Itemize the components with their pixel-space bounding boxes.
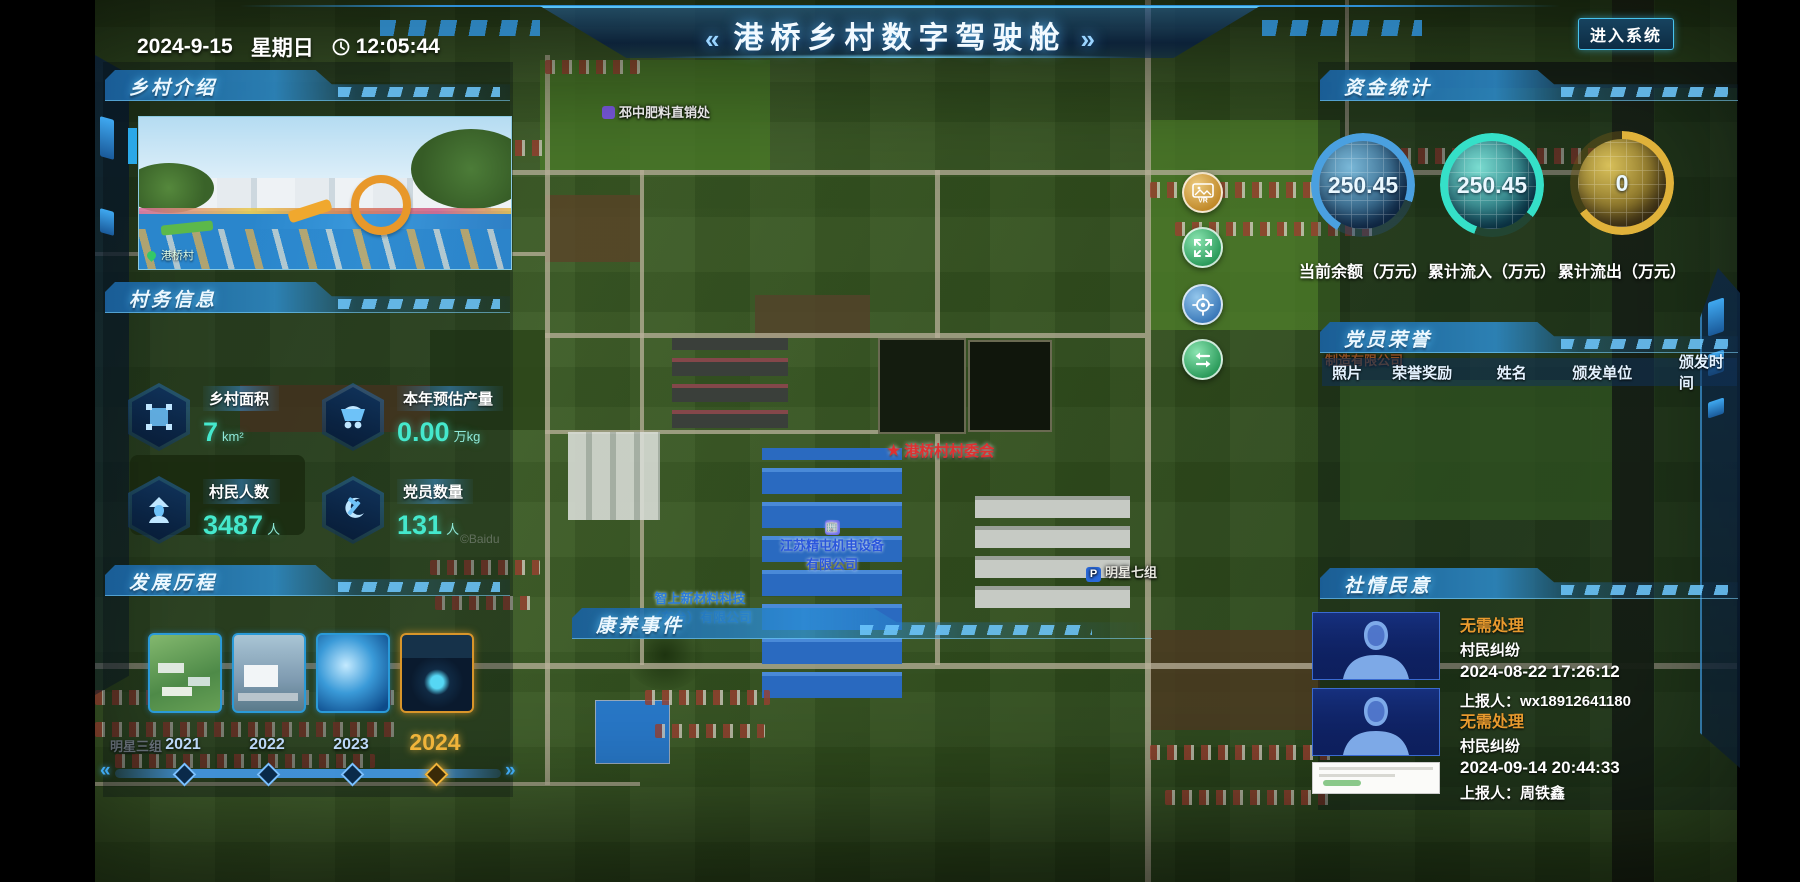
event-time: 2024-09-14 20:44:33 <box>1460 758 1620 778</box>
year-label-2022[interactable]: 2022 <box>232 736 302 754</box>
map-pond <box>878 338 966 434</box>
panel-title: 党员荣誉 <box>1344 325 1432 352</box>
clock-icon <box>332 38 350 56</box>
map-poi-fertilizer[interactable]: 邳中肥料直销处 <box>602 102 710 121</box>
map-building-cluster <box>672 338 788 428</box>
expand-arrows-icon <box>1193 238 1213 258</box>
page-title: «港桥乡村数字驾驶舱» <box>540 13 1260 57</box>
gauge-inflow: 250.45 <box>1440 133 1544 237</box>
map-factory-white <box>975 488 1130 608</box>
stat-icon-frame <box>322 383 384 451</box>
panel-title: 发展历程 <box>129 568 217 595</box>
map-road <box>545 55 550 785</box>
enter-system-button[interactable]: 进入系统 <box>1578 18 1674 50</box>
photo-path <box>138 229 512 270</box>
column-header: 照片 <box>1322 362 1392 383</box>
map-building-cluster <box>568 432 660 520</box>
gauge-value: 250.45 <box>1440 133 1544 237</box>
cart-icon <box>337 403 369 431</box>
vr-panorama-button[interactable]: VR <box>1182 172 1223 213</box>
header-stripes <box>860 625 1092 635</box>
stat-label: 党员数量 <box>397 479 473 504</box>
sentiment-screenshot-thumb <box>1312 762 1440 794</box>
year-label-2024-active[interactable]: 2024 <box>400 729 470 756</box>
stat-estimated-output: 本年预估产量 0.00万kg <box>322 383 517 451</box>
history-thumb-2022[interactable] <box>232 633 306 713</box>
photo-ring-sculpture <box>351 175 411 235</box>
stat-party-member-count: 党员数量 131人 <box>322 476 517 544</box>
time-label: 12:05:44 <box>356 35 440 59</box>
sentiment-avatar <box>1312 612 1440 680</box>
honors-table-header: 照片 荣誉奖励 姓名 颁发单位 颁发时间 <box>1322 358 1737 386</box>
map-poi-mingxing7[interactable]: P明星七组 <box>1086 562 1157 582</box>
event-time: 2024-08-22 17:26:12 <box>1460 662 1620 682</box>
map-houses <box>1150 745 1335 760</box>
gauge-label-outflow: 累计流出（万元） <box>1542 258 1702 282</box>
parking-marker-icon: P <box>1086 567 1101 582</box>
stat-icon-frame <box>128 383 190 451</box>
map-factory-blue <box>762 448 902 698</box>
weekday-label: 星期日 <box>251 32 314 62</box>
title-left-mark: « <box>705 24 719 54</box>
map-field <box>1150 630 1320 730</box>
map-field <box>545 195 640 262</box>
poi-icon <box>602 106 615 119</box>
people-icon <box>145 495 173 525</box>
panel-title: 康养事件 <box>596 611 684 638</box>
person-hologram-icon <box>1313 613 1439 679</box>
map-road <box>545 333 1145 338</box>
header-stripes <box>1561 585 1728 595</box>
map-field <box>755 295 870 338</box>
header-stripes <box>1561 87 1728 97</box>
star-marker-icon: ★ <box>886 441 901 460</box>
column-header: 姓名 <box>1497 362 1573 383</box>
year-label-2023[interactable]: 2023 <box>316 736 386 754</box>
locate-button[interactable] <box>1182 284 1223 325</box>
map-poi-village-committee[interactable]: ★港桥村村委会 <box>886 440 994 461</box>
stat-villager-count: 村民人数 3487人 <box>128 476 323 544</box>
stat-label: 乡村面积 <box>203 386 279 411</box>
photo-accent-bar <box>128 128 137 164</box>
panel-title: 资金统计 <box>1344 73 1432 100</box>
header-stripes <box>338 87 500 97</box>
column-header: 颁发单位 <box>1572 362 1679 383</box>
left-frame-bar <box>100 116 114 160</box>
stat-label: 村民人数 <box>203 479 280 504</box>
stat-value: 7km² <box>203 417 279 448</box>
status-badge: 无需处理 <box>1460 708 1620 732</box>
date-label: 2024-9-15 <box>137 35 233 59</box>
map-houses <box>545 60 640 74</box>
village-photo[interactable]: 港桥村 <box>138 116 512 270</box>
gauge-value: 250.45 <box>1311 133 1415 237</box>
column-header: 荣誉奖励 <box>1392 362 1497 383</box>
title-right-mark: » <box>1081 24 1095 54</box>
stat-icon-frame <box>322 476 384 544</box>
dashboard-stage: 邳中肥料直销处 ★港桥村村委会 🏢 江苏精屯机电设备有限公司 智上新材料科技（东… <box>0 0 1800 882</box>
status-badge: 无需处理 <box>1460 612 1620 636</box>
stat-value: 131人 <box>397 510 473 541</box>
stat-village-area: 乡村面积 7km² <box>128 383 323 451</box>
map-road <box>640 170 644 665</box>
header-stripes <box>1561 339 1728 349</box>
building-marker-icon: 🏢 <box>825 520 840 535</box>
panel-title: 社情民意 <box>1344 571 1432 598</box>
event-category: 村民纠纷 <box>1460 735 1620 756</box>
timeline-prev-arrow[interactable]: « <box>100 760 111 782</box>
history-thumb-2021[interactable] <box>148 633 222 713</box>
event-category: 村民纠纷 <box>1460 639 1620 660</box>
swap-arrows-icon <box>1192 351 1214 369</box>
reporter-2: 上报人：周铁鑫 <box>1460 782 1565 803</box>
header-stripes <box>338 299 500 309</box>
map-houses <box>1165 790 1335 805</box>
sentiment-avatar <box>1312 688 1440 756</box>
gauge-balance: 250.45 <box>1311 133 1415 237</box>
sentiment-item-1[interactable]: 无需处理 村民纠纷 2024-08-22 17:26:12 <box>1460 612 1620 682</box>
crosshair-target-icon <box>1192 294 1214 316</box>
gauge-outflow: 0 <box>1570 131 1674 235</box>
vr-image-icon: VR <box>1192 183 1214 203</box>
map-houses <box>645 690 770 705</box>
left-frame-bar <box>100 208 114 236</box>
panel-title: 村务信息 <box>129 285 217 312</box>
panel-title: 乡村介绍 <box>129 73 217 100</box>
map-pond <box>968 340 1052 432</box>
map-houses <box>655 724 765 738</box>
title-dashes-right <box>1262 20 1422 36</box>
layer-switch-button[interactable] <box>1182 339 1223 380</box>
location-pin-icon <box>145 249 158 262</box>
stat-value: 0.00万kg <box>397 417 503 448</box>
year-label-2021[interactable]: 2021 <box>148 736 218 754</box>
column-header: 颁发时间 <box>1679 351 1737 393</box>
party-emblem-icon <box>338 495 368 525</box>
area-icon <box>144 402 174 432</box>
history-thumb-2024[interactable] <box>400 633 474 713</box>
sentiment-item-2[interactable]: 无需处理 村民纠纷 2024-09-14 20:44:33 <box>1460 708 1620 778</box>
gauge-value: 0 <box>1570 131 1674 235</box>
datetime-bar: 2024-9-15 星期日 12:05:44 <box>137 32 440 62</box>
stat-value: 3487人 <box>203 510 280 541</box>
stat-icon-frame <box>128 476 190 544</box>
svg-text:VR: VR <box>1198 197 1208 203</box>
fullscreen-button[interactable] <box>1182 227 1223 268</box>
map-poi-company1[interactable]: 🏢 江苏精屯机电设备有限公司 <box>780 518 884 573</box>
header-stripes <box>338 582 500 592</box>
stat-label: 本年预估产量 <box>397 386 503 411</box>
photo-caption: 港桥村 <box>147 247 194 263</box>
right-frame-bar <box>1708 297 1724 336</box>
person-hologram-icon <box>1313 689 1439 755</box>
history-thumb-2023[interactable] <box>316 633 390 713</box>
timeline-next-arrow[interactable]: » <box>505 760 516 782</box>
